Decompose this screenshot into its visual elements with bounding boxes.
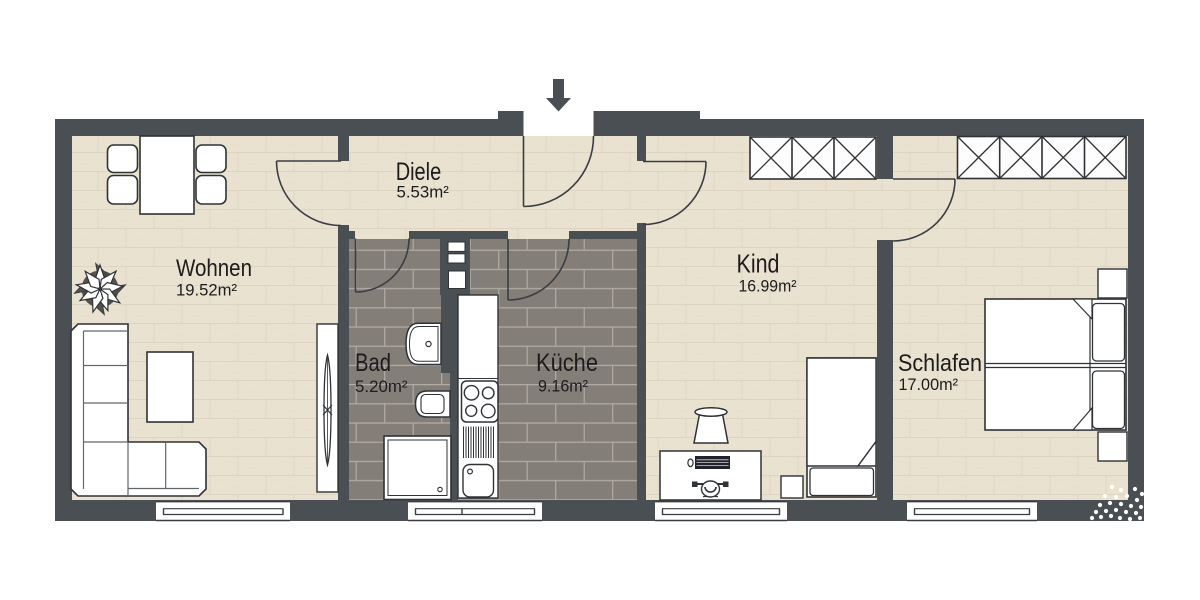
svg-text:Küche: Küche xyxy=(536,349,598,377)
svg-text:16.99m²: 16.99m² xyxy=(739,276,797,295)
svg-text:Schlafen: Schlafen xyxy=(898,350,982,377)
svg-text:9.16m²: 9.16m² xyxy=(538,377,588,396)
svg-text:Wohnen: Wohnen xyxy=(176,255,252,282)
svg-text:17.00m²: 17.00m² xyxy=(899,375,959,394)
svg-text:5.53m²: 5.53m² xyxy=(397,183,450,202)
svg-text:Bad: Bad xyxy=(355,349,391,377)
svg-text:5.20m²: 5.20m² xyxy=(355,377,408,396)
svg-text:Kind: Kind xyxy=(737,251,780,279)
svg-text:19.52m²: 19.52m² xyxy=(176,281,237,300)
